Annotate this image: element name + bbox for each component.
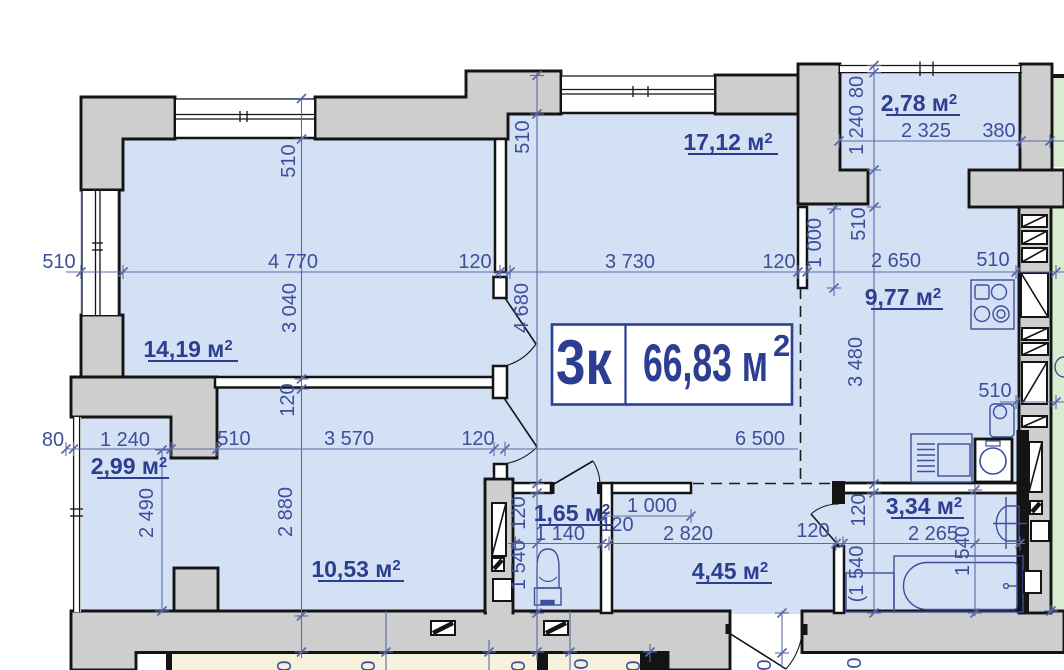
svg-text:2,78 м2: 2,78 м2 bbox=[881, 90, 958, 116]
svg-text:4 770: 4 770 bbox=[268, 251, 318, 273]
svg-text:3,34 м2: 3,34 м2 bbox=[886, 493, 963, 519]
svg-text:1 540: 1 540 bbox=[952, 526, 974, 576]
svg-text:3 730: 3 730 bbox=[605, 251, 655, 273]
svg-text:80: 80 bbox=[846, 76, 868, 98]
svg-text:80: 80 bbox=[42, 429, 64, 451]
svg-text:510: 510 bbox=[278, 144, 300, 177]
svg-text:2 650: 2 650 bbox=[871, 250, 921, 272]
svg-text:4 680: 4 680 bbox=[511, 283, 533, 333]
svg-text:3к: 3к bbox=[556, 328, 613, 398]
svg-text:0: 0 bbox=[508, 660, 530, 670]
svg-text:0: 0 bbox=[844, 657, 866, 668]
svg-text:120: 120 bbox=[508, 496, 530, 529]
svg-text:1 240: 1 240 bbox=[100, 429, 150, 451]
svg-text:6 500: 6 500 bbox=[735, 428, 785, 450]
svg-text:120: 120 bbox=[458, 251, 491, 273]
svg-text:120: 120 bbox=[796, 520, 829, 542]
svg-text:0: 0 bbox=[623, 660, 645, 670]
svg-text:0: 0 bbox=[571, 658, 593, 669]
svg-text:510: 510 bbox=[848, 207, 870, 240]
svg-text:1 140: 1 140 bbox=[535, 523, 585, 545]
svg-text:1 000: 1 000 bbox=[627, 495, 677, 517]
svg-text:0: 0 bbox=[358, 660, 380, 670]
svg-text:17,12 м2: 17,12 м2 bbox=[683, 129, 772, 155]
svg-text:1 240: 1 240 bbox=[846, 105, 868, 155]
svg-text:120: 120 bbox=[762, 251, 795, 273]
svg-text:14,19 м2: 14,19 м2 bbox=[143, 336, 232, 362]
svg-text:510: 510 bbox=[978, 380, 1011, 402]
svg-text:3 480: 3 480 bbox=[845, 337, 867, 387]
svg-text:2,99 м2: 2,99 м2 bbox=[91, 453, 168, 479]
svg-text:(1 540: (1 540 bbox=[846, 546, 868, 603]
svg-text:1 000: 1 000 bbox=[804, 218, 826, 268]
svg-text:510: 510 bbox=[217, 428, 250, 450]
svg-text:3 040: 3 040 bbox=[279, 283, 301, 333]
svg-text:510: 510 bbox=[976, 249, 1009, 271]
svg-text:0: 0 bbox=[754, 659, 776, 670]
svg-text:120: 120 bbox=[277, 383, 299, 416]
svg-text:380: 380 bbox=[982, 120, 1015, 142]
svg-text:2 880: 2 880 bbox=[275, 487, 297, 537]
svg-text:2 265: 2 265 bbox=[908, 523, 958, 545]
svg-text:3 570: 3 570 bbox=[324, 428, 374, 450]
svg-text:1,65 м2: 1,65 м2 bbox=[534, 500, 611, 526]
svg-text:66,83 м: 66,83 м bbox=[643, 333, 768, 393]
svg-text:2 325: 2 325 bbox=[901, 120, 951, 142]
svg-text:120: 120 bbox=[461, 428, 494, 450]
svg-text:1 540: 1 540 bbox=[508, 540, 530, 590]
svg-text:510: 510 bbox=[42, 251, 75, 273]
svg-text:120: 120 bbox=[848, 493, 870, 526]
svg-text:0: 0 bbox=[274, 660, 296, 670]
svg-text:9,77 м2: 9,77 м2 bbox=[865, 284, 942, 310]
svg-text:2 490: 2 490 bbox=[136, 488, 158, 538]
svg-text:10,53 м2: 10,53 м2 bbox=[311, 556, 400, 582]
svg-text:2 820: 2 820 bbox=[663, 523, 713, 545]
svg-text:510: 510 bbox=[512, 120, 534, 153]
svg-text:4,45 м2: 4,45 м2 bbox=[692, 558, 769, 584]
svg-text:2: 2 bbox=[773, 328, 790, 363]
